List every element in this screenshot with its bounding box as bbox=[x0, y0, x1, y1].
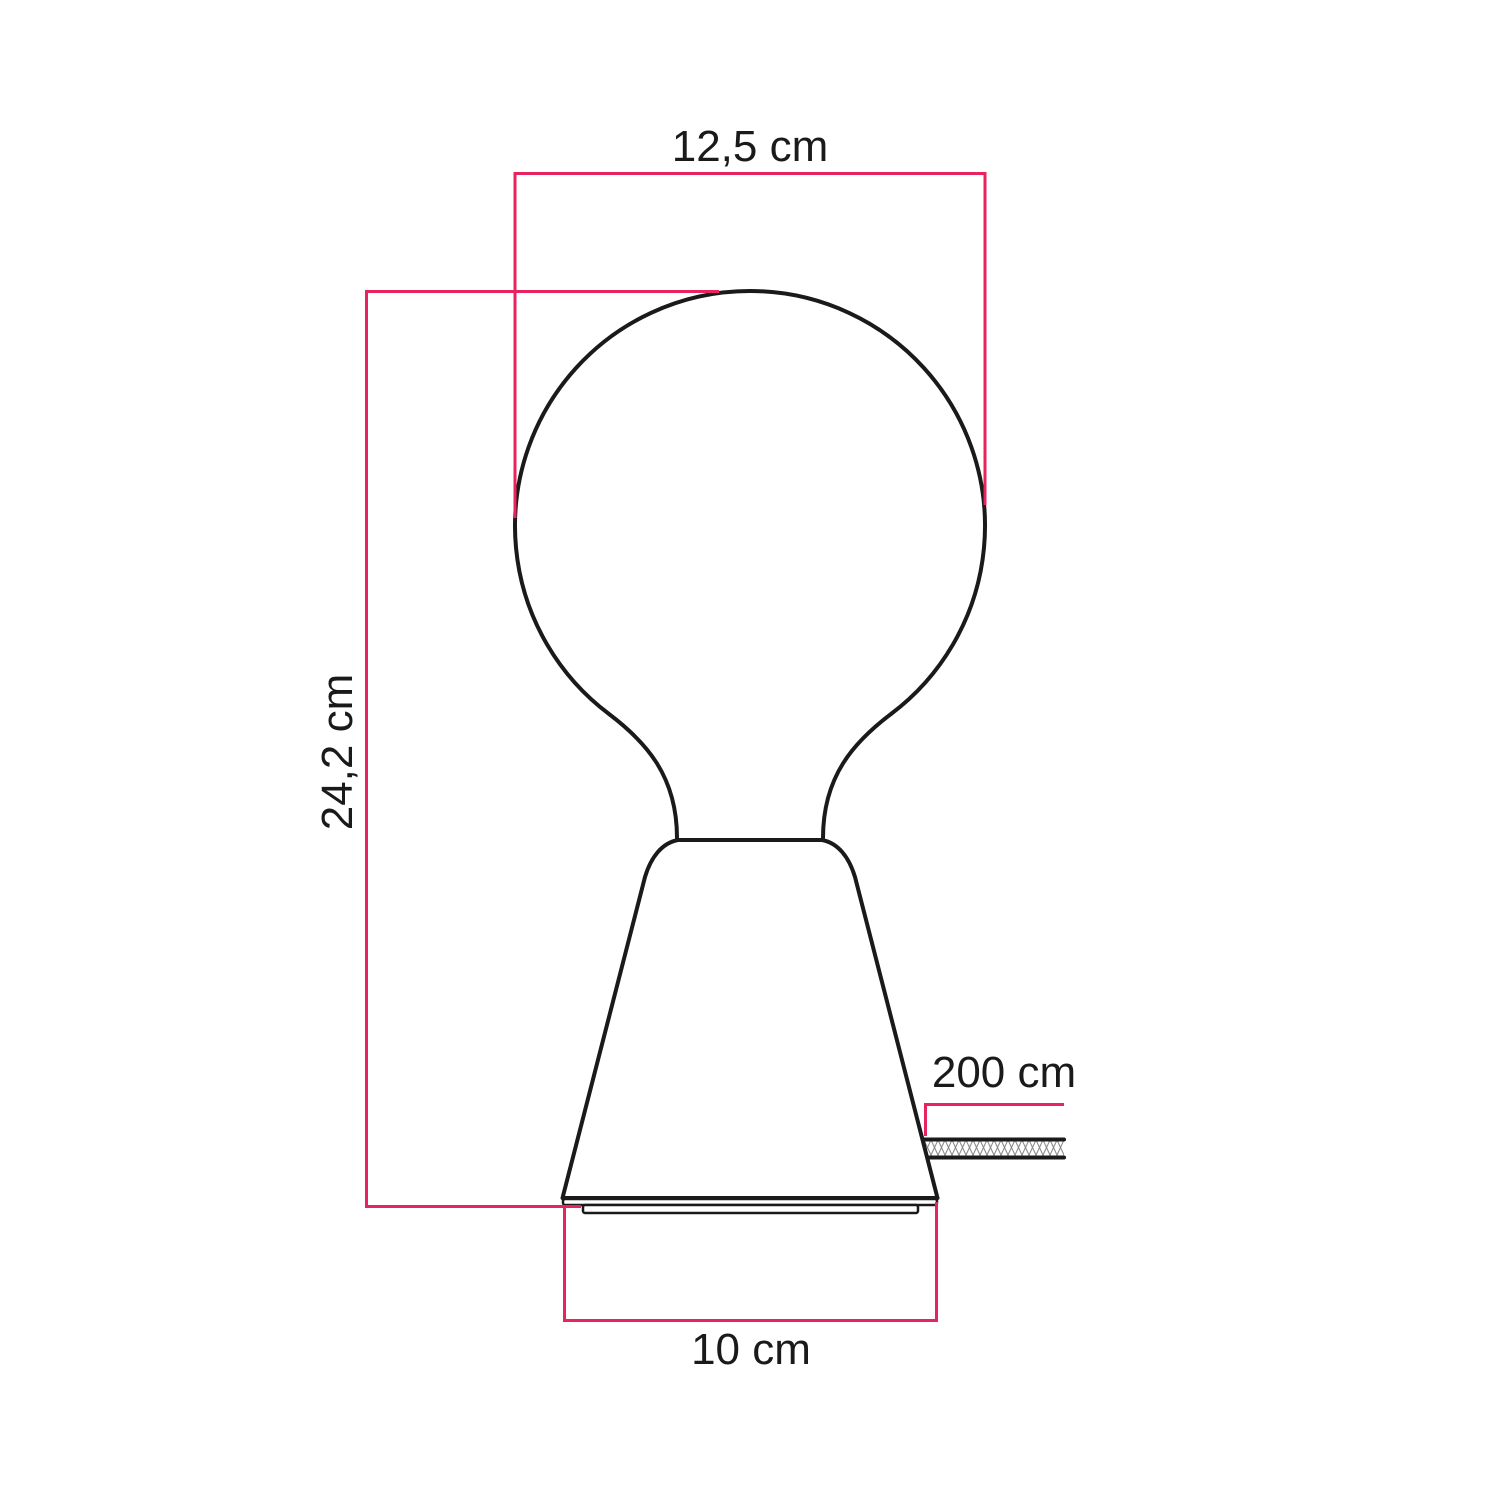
dimension-line-base-width bbox=[565, 1202, 937, 1321]
lamp-technical-drawing bbox=[0, 0, 1500, 1500]
lamp-base-cone bbox=[563, 840, 938, 1198]
cable-braid bbox=[916, 1141, 1064, 1156]
globe-bulb-outline bbox=[515, 291, 985, 838]
base-plate-lower bbox=[583, 1205, 918, 1213]
dimension-label-cable-length: 200 cm bbox=[932, 1049, 1076, 1097]
dimension-label-bulb-width: 12,5 cm bbox=[672, 123, 829, 171]
lamp-dimension-diagram: 12,5 cm 24,2 cm 200 cm 10 cm bbox=[0, 0, 1500, 1500]
dimension-line-bulb-width bbox=[515, 174, 985, 519]
dimension-line-cable-length bbox=[926, 1105, 1065, 1137]
power-cable bbox=[916, 1140, 1064, 1158]
dimension-label-base-width: 10 cm bbox=[691, 1326, 811, 1374]
dimension-label-total-height: 24,2 cm bbox=[314, 674, 362, 831]
